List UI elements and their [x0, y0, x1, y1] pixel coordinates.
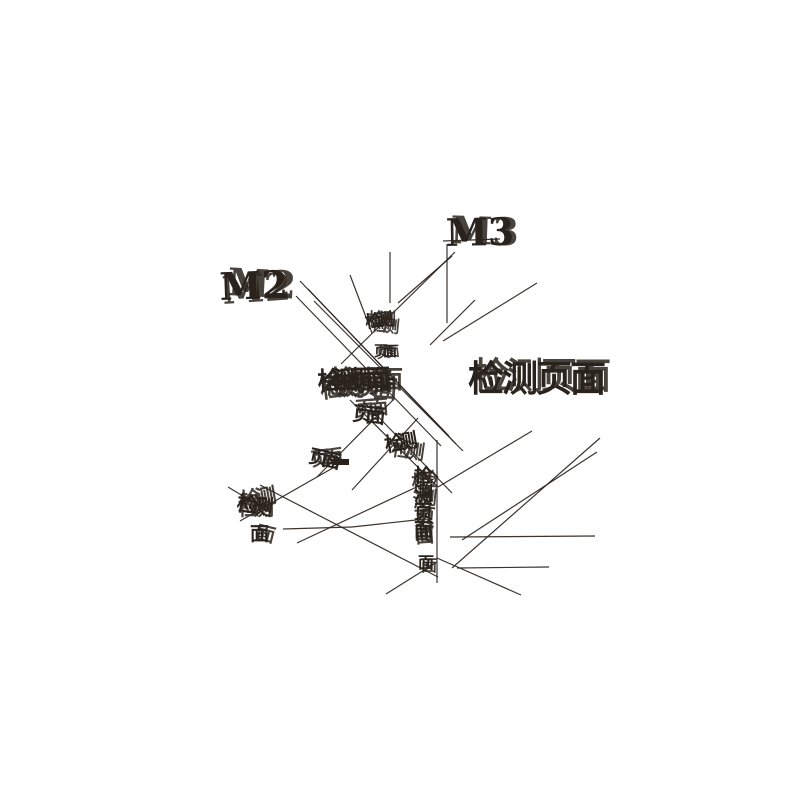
graph-label-node-label-m2-ghost: M2 — [220, 263, 291, 313]
graph-edge — [450, 536, 595, 537]
graph-edge — [437, 558, 521, 595]
graph-label-cluster-left-mid-ghost: 页面 — [310, 445, 345, 471]
graph-edge — [452, 438, 600, 568]
graph-label-node-label-page-ghost: 检测页面 — [473, 355, 610, 397]
graph-label-cluster-bottom-left-2-ghost: 面 — [254, 522, 278, 548]
graph-svg: M3M3M2M2M2检测页面检测页面检测检测检测页面页面检测页面检测页面检测页面… — [0, 0, 800, 800]
glitched-graph-canvas: M3M3M2M2M2检测页面检测页面检测检测检测页面页面检测页面检测页面检测页面… — [0, 0, 800, 800]
graph-edge — [443, 283, 537, 341]
graph-edge — [260, 485, 438, 577]
graph-edge — [462, 452, 597, 540]
graph-label-cluster-bottom-left-ghost: 检测 — [238, 495, 273, 520]
graph-edge — [283, 527, 352, 529]
graph-edge — [457, 567, 549, 568]
graph-edge — [430, 300, 475, 345]
graph-label-cluster-top-2-ghost: 页面 — [376, 344, 401, 362]
graph-label-node-label-m3-ghost: M3 — [450, 207, 520, 254]
graph-label-cluster-bottom-tail-ghost: 面 — [421, 556, 437, 575]
graph-edge — [341, 252, 455, 364]
